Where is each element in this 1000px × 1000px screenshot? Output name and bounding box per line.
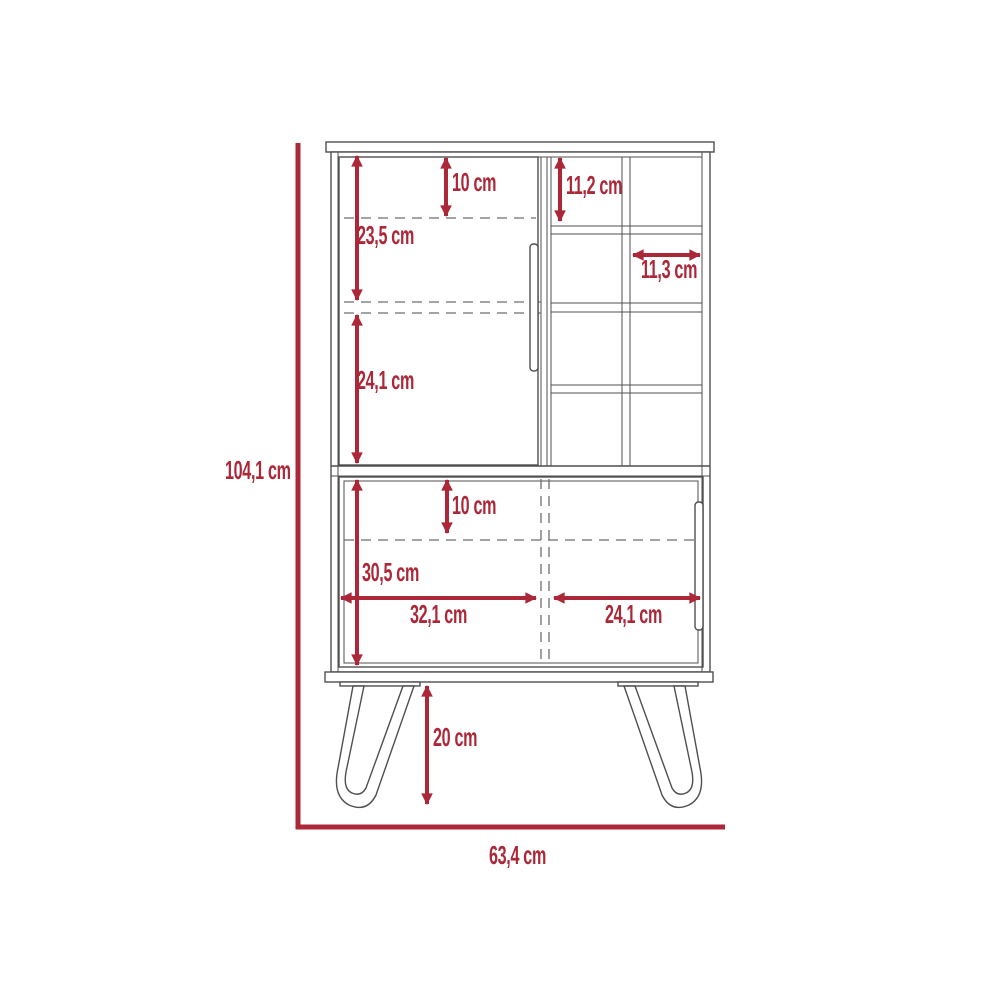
dim-label-cubby-height: 11,2 cm xyxy=(566,172,622,198)
bottom-board xyxy=(325,672,713,682)
dim-label-lower-right-width: 24,1 cm xyxy=(605,601,662,627)
leg-right xyxy=(624,686,702,807)
dim-label-leg-height: 20 cm xyxy=(433,724,477,750)
hairpin-legs xyxy=(336,682,701,807)
dim-label-lower-left-width: 32,1 cm xyxy=(410,601,467,627)
dim-label-overall-height: 104,1 cm xyxy=(225,457,291,483)
lower-door-handle xyxy=(695,502,703,630)
dim-label-overall-width: 63,4 cm xyxy=(489,842,546,868)
top-board xyxy=(326,142,714,152)
dim-label-lower-top-offset: 10 cm xyxy=(452,492,496,518)
leg-left xyxy=(336,686,414,807)
dim-label-upper-top-offset: 10 cm xyxy=(452,169,496,195)
dim-label-upper-shelf-b: 24,1 cm xyxy=(357,367,414,393)
dimension-diagram: 10 cm 23,5 cm 24,1 cm 11,2 cm 11,3 cm 10… xyxy=(0,0,1000,1000)
dim-label-lower-height: 30,5 cm xyxy=(362,559,419,585)
upper-door-handle xyxy=(530,244,538,371)
dim-label-upper-shelf-a: 23,5 cm xyxy=(357,222,414,248)
dim-label-cubby-width: 11,3 cm xyxy=(641,256,697,282)
